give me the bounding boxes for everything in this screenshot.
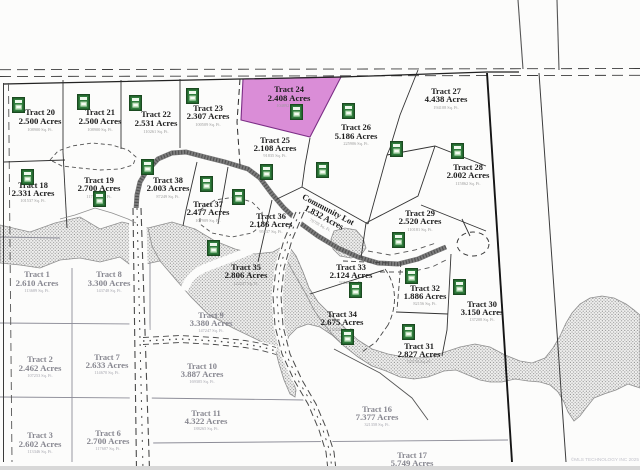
svg-text:2.610 Acres: 2.610 Acres: [16, 278, 59, 288]
svg-text:3.380 Acres: 3.380 Acres: [190, 318, 233, 328]
svg-text:2.307 Acres: 2.307 Acres: [187, 111, 230, 121]
svg-text:110181 Sq. Ft.: 110181 Sq. Ft.: [407, 227, 432, 232]
svg-text:225906 Sq. Ft.: 225906 Sq. Ft.: [343, 141, 368, 146]
svg-text:3.150 Acres: 3.150 Acres: [461, 307, 504, 317]
svg-text:2.520 Acres: 2.520 Acres: [399, 216, 442, 226]
svg-text:2.806 Acres: 2.806 Acres: [225, 270, 268, 280]
svg-text:107909 Sq. Ft.: 107909 Sq. Ft.: [195, 218, 220, 223]
svg-text:2.408 Acres: 2.408 Acres: [268, 93, 311, 103]
svg-text:2.477 Acres: 2.477 Acres: [187, 207, 230, 217]
svg-text:2.633 Acres: 2.633 Acres: [86, 360, 129, 370]
svg-text:122237 Sq. Ft.: 122237 Sq. Ft.: [233, 281, 258, 286]
svg-text:5.186 Acres: 5.186 Acres: [335, 131, 378, 141]
svg-text:113346 Sq. Ft.: 113346 Sq. Ft.: [27, 449, 52, 454]
svg-text:2.002 Acres: 2.002 Acres: [447, 170, 490, 180]
svg-text:194108 Sq. Ft.: 194108 Sq. Ft.: [433, 105, 458, 110]
svg-text:143748 Sq. Ft.: 143748 Sq. Ft.: [96, 288, 121, 293]
svg-text:101537 Sq. Ft.: 101537 Sq. Ft.: [20, 198, 45, 203]
svg-text:110261 Sq. Ft.: 110261 Sq. Ft.: [143, 129, 168, 134]
svg-text:4.322 Acres: 4.322 Acres: [185, 416, 228, 426]
svg-text:2.827 Acres: 2.827 Acres: [398, 349, 441, 359]
svg-text:7.377 Acres: 7.377 Acres: [356, 412, 399, 422]
svg-text:91835 Sq. Ft.: 91835 Sq. Ft.: [263, 153, 286, 158]
svg-text:2.462 Acres: 2.462 Acres: [19, 363, 62, 373]
svg-text:©MLS TECHNOLOGY INC 2025: ©MLS TECHNOLOGY INC 2025: [571, 456, 640, 462]
svg-text:2.124 Acres: 2.124 Acres: [330, 270, 373, 280]
svg-text:117607 Sq. Ft.: 117607 Sq. Ft.: [95, 446, 120, 451]
svg-text:2.700 Acres: 2.700 Acres: [87, 436, 130, 446]
svg-text:321358 Sq. Ft.: 321358 Sq. Ft.: [364, 422, 389, 427]
svg-text:2.108 Acres: 2.108 Acres: [254, 143, 297, 153]
svg-text:3.300 Acres: 3.300 Acres: [88, 278, 131, 288]
svg-text:82156 Sq. Ft.: 82156 Sq. Ft.: [413, 301, 436, 306]
svg-text:3.887 Acres: 3.887 Acres: [181, 369, 224, 379]
svg-text:2.331 Acres: 2.331 Acres: [12, 188, 55, 198]
svg-text:2.003 Acres: 2.003 Acres: [147, 183, 190, 193]
svg-text:4.438 Acres: 4.438 Acres: [425, 94, 468, 104]
svg-text:100509 Sq. Ft.: 100509 Sq. Ft.: [195, 122, 220, 127]
svg-text:2.602 Acres: 2.602 Acres: [19, 439, 62, 449]
svg-text:114670 Sq. Ft.: 114670 Sq. Ft.: [94, 370, 119, 375]
svg-text:188265 Sq. Ft.: 188265 Sq. Ft.: [193, 426, 218, 431]
svg-text:2.186 Acres: 2.186 Acres: [250, 219, 293, 229]
svg-text:2.500 Acres: 2.500 Acres: [79, 116, 122, 126]
svg-text:108900 Sq. Ft.: 108900 Sq. Ft.: [27, 127, 52, 132]
svg-text:113689 Sq. Ft.: 113689 Sq. Ft.: [24, 288, 49, 293]
svg-text:1.886 Acres: 1.886 Acres: [404, 291, 447, 301]
svg-text:2.500 Acres: 2.500 Acres: [19, 116, 62, 126]
svg-text:137208 Sq. Ft.: 137208 Sq. Ft.: [469, 317, 494, 322]
svg-text:87249 Sq. Ft.: 87249 Sq. Ft.: [156, 194, 179, 199]
svg-text:123156 Sq. Ft.: 123156 Sq. Ft.: [406, 359, 431, 364]
svg-text:2.675 Acres: 2.675 Acres: [321, 317, 364, 327]
svg-text:115862 Sq. Ft.: 115862 Sq. Ft.: [455, 181, 480, 186]
svg-text:107253 Sq. Ft.: 107253 Sq. Ft.: [27, 373, 52, 378]
svg-text:108900 Sq. Ft.: 108900 Sq. Ft.: [87, 127, 112, 132]
svg-text:147247 Sq. Ft.: 147247 Sq. Ft.: [198, 328, 223, 333]
svg-text:95237 Sq. Ft.: 95237 Sq. Ft.: [259, 229, 282, 234]
svg-text:169305 Sq. Ft.: 169305 Sq. Ft.: [189, 379, 214, 384]
svg-text:2.531 Acres: 2.531 Acres: [135, 118, 178, 128]
